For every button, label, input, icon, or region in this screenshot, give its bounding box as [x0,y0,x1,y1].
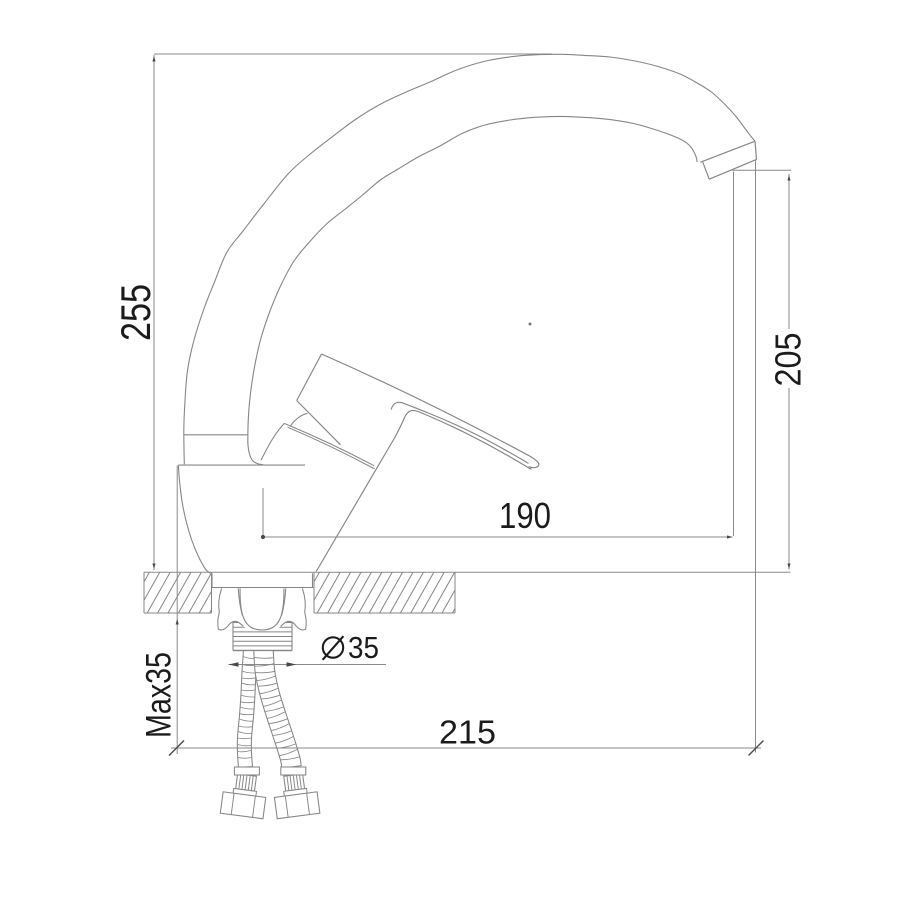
svg-text:35: 35 [348,631,379,665]
svg-text:215: 215 [439,715,496,752]
svg-text:255: 255 [112,284,159,341]
svg-text:205: 205 [768,333,809,387]
svg-text:Max35: Max35 [139,652,179,738]
svg-text:190: 190 [499,495,551,536]
